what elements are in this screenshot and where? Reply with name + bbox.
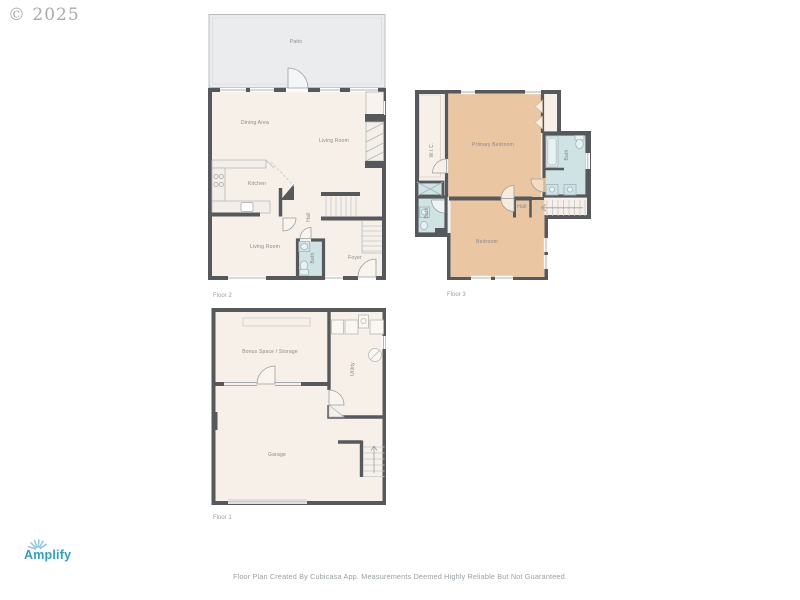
- sink-icon: [567, 187, 572, 192]
- floor3-drawing: [413, 83, 593, 288]
- room-label-wic: W.I.C.: [429, 143, 435, 158]
- logo-text: Amplify: [24, 548, 71, 562]
- room-label-patio: Patio: [290, 39, 302, 45]
- copyright-watermark: © 2025: [8, 5, 80, 25]
- room-label-bedroom: Bedroom: [476, 239, 498, 245]
- toilet-icon: [300, 261, 308, 270]
- kitchen-sink-icon: [241, 203, 253, 212]
- closet-icon: [417, 182, 443, 196]
- toilet-icon: [421, 221, 428, 229]
- room-label-foyer: Foyer: [348, 255, 362, 261]
- room-label-bath-right: Bath: [564, 149, 570, 160]
- washer-dryer-icon: [332, 320, 384, 334]
- amplify-logo: Amplify: [22, 534, 82, 564]
- room-label-kitchen: Kitchen: [248, 181, 266, 187]
- room-label-living-upper: Living Room: [319, 138, 349, 144]
- room-label-dining: Dining Area: [241, 120, 269, 126]
- sink-icon: [549, 187, 554, 192]
- room-label-bonus: Bonus Space / Storage: [242, 349, 298, 355]
- wall-pier: [212, 412, 218, 430]
- bathroom-left: [417, 197, 446, 235]
- utility-sink-icon: [359, 315, 369, 328]
- floor2-drawing: [208, 13, 386, 281]
- room-label-bath: Bath: [310, 252, 316, 263]
- floor1-label: Floor 1: [213, 515, 232, 521]
- garage-door-icon: [228, 499, 307, 504]
- room-label-living-lower: Living Room: [250, 244, 280, 250]
- room-label-bath-left: Bath: [424, 207, 430, 218]
- footer-disclaimer: Floor Plan Created By Cubicasa App. Meas…: [0, 572, 800, 581]
- floor1-plan: Bonus Space / Storage Utility Garage Flo…: [211, 306, 386, 531]
- floor3-label: Floor 3: [447, 292, 466, 298]
- floor3-plan: Primary Bedroom W.I.C. Bath Bath Bedroom…: [413, 83, 593, 308]
- window-icon: [381, 336, 385, 349]
- room-label-hall: Hall: [517, 204, 526, 210]
- floor1-drawing: [211, 306, 386, 511]
- floor2-plan: Patio Dining Area Living Room Kitchen Li…: [208, 13, 386, 313]
- floor2-label: Floor 2: [213, 293, 232, 299]
- floorplan-page: © 2025: [0, 0, 800, 600]
- water-heater-icon: [369, 349, 382, 362]
- room-label-primary-bedroom: Primary Bedroom: [472, 142, 514, 148]
- stairs-up-icon: [365, 92, 384, 168]
- floor1-outline: [214, 310, 385, 503]
- room-label-garage: Garage: [268, 452, 286, 458]
- room-label-utility: Utility: [350, 362, 356, 376]
- toilet-icon: [576, 139, 584, 148]
- room-label-hall: Hall: [306, 212, 312, 221]
- sink-icon: [301, 244, 308, 250]
